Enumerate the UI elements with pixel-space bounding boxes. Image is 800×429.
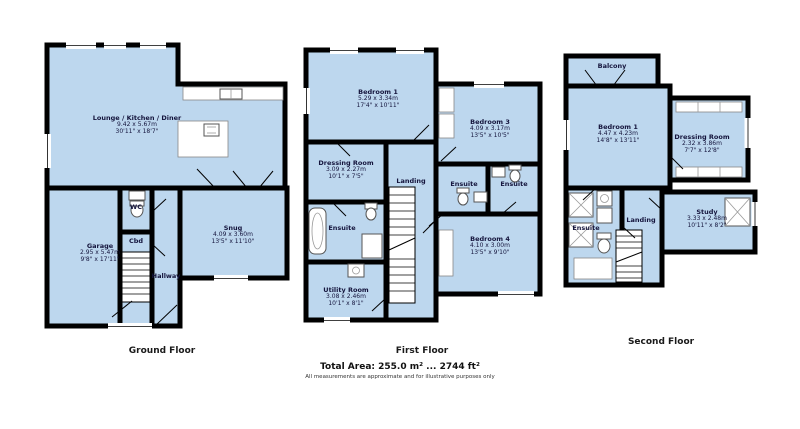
disclaimer-text: All measurements are approximate and for… [305,374,494,380]
room-name: Ensuite [572,225,599,232]
room-name: Hallway [152,273,181,280]
room-dimensions-imperial: 30'11" x 18'7" [93,129,181,136]
room-label-second-dressing-room: Dressing Room 2.32 x 3.86m 7'7" x 12'8" [674,134,729,154]
room-label-first-dressing-room: Dressing Room 3.09 x 2.27m 10'1" x 7'5" [318,160,373,180]
room-dimensions-imperial: 9'8" x 17'11" [80,257,120,264]
room-label-hallway: Hallway [152,273,181,280]
room-label-ensuite-right: Ensuite [500,181,527,188]
room-label-lounge-kitchen-diner: Lounge / Kitchen / Diner 9.42 x 5.67m 30… [93,115,181,135]
floorplan-page: Lounge / Kitchen / Diner 9.42 x 5.67m 30… [0,0,800,429]
room-name: Ensuite [500,181,527,188]
room-name: Landing [626,217,655,224]
total-area-text: Total Area: 255.0 m² ... 2744 ft² [320,362,480,372]
room-label-ensuite-left: Ensuite [328,225,355,232]
room-name: WC [130,204,142,211]
study-shower-icon [725,198,750,226]
first-stairs-icon [389,187,415,303]
room-name: Landing [396,178,425,185]
room-dimensions-imperial: 13'5" x 10'5" [470,133,510,140]
bath-icon [309,208,326,254]
room-dimensions-imperial: 10'11" x 8'2" [687,223,727,230]
kitchen-island-icon [178,121,228,157]
room-label-snug: Snug 4.09 x 3.60m 13'5" x 11'10" [212,225,255,245]
room-name: Ensuite [450,181,477,188]
room-dimensions-imperial: 13'5" x 11'10" [212,239,255,246]
room-dimensions-imperial: 13'5" x 9'10" [470,250,510,257]
room-label-second-bedroom1: Bedroom 1 4.47 x 4.23m 14'8" x 13'11" [597,124,640,144]
room-dimensions-imperial: 17'4" x 10'11" [357,103,400,110]
room-label-balcony: Balcony [598,63,627,70]
room-label-garage: Garage 2.95 x 5.47m 9'8" x 17'11" [80,243,120,263]
ground-stairs-icon [122,252,150,302]
second-floor-title: Second Floor [628,337,694,347]
room-name: Cbd [129,238,143,245]
room-label-bedroom4: Bedroom 4 4.10 x 3.00m 13'5" x 9'10" [470,236,510,256]
room-dimensions-imperial: 14'8" x 13'11" [597,138,640,145]
room-label-study: Study 3.33 x 2.48m 10'11" x 8'2" [687,209,727,229]
room-label-wc: WC [130,204,142,211]
room-dimensions-imperial: 10'1" x 7'5" [318,174,373,181]
room-label-second-ensuite: Ensuite [572,225,599,232]
ground-floor-title: Ground Floor [129,346,195,356]
room-label-first-bedroom1: Bedroom 1 5.29 x 3.34m 17'4" x 10'11" [357,89,400,109]
kitchen-counter-icon [183,87,283,100]
room-name: Balcony [598,63,627,70]
first-floor-title: First Floor [396,346,449,356]
eaves-storage-icon [574,258,612,279]
room-dimensions-imperial: 7'7" x 12'8" [674,148,729,155]
room-name: Ensuite [328,225,355,232]
room-label-first-landing: Landing [396,178,425,185]
room-label-cbd: Cbd [129,238,143,245]
room-label-second-landing: Landing [626,217,655,224]
room-dimensions-imperial: 10'1" x 8'1" [323,301,368,308]
room-label-bedroom3: Bedroom 3 4.09 x 3.17m 13'5" x 10'5" [470,119,510,139]
room-label-utility-room: Utility Room 3.08 x 2.46m 10'1" x 8'1" [323,287,368,307]
room-label-ensuite-mid: Ensuite [450,181,477,188]
washing-machine-icon [348,264,364,277]
second-stairs-icon [616,230,642,282]
